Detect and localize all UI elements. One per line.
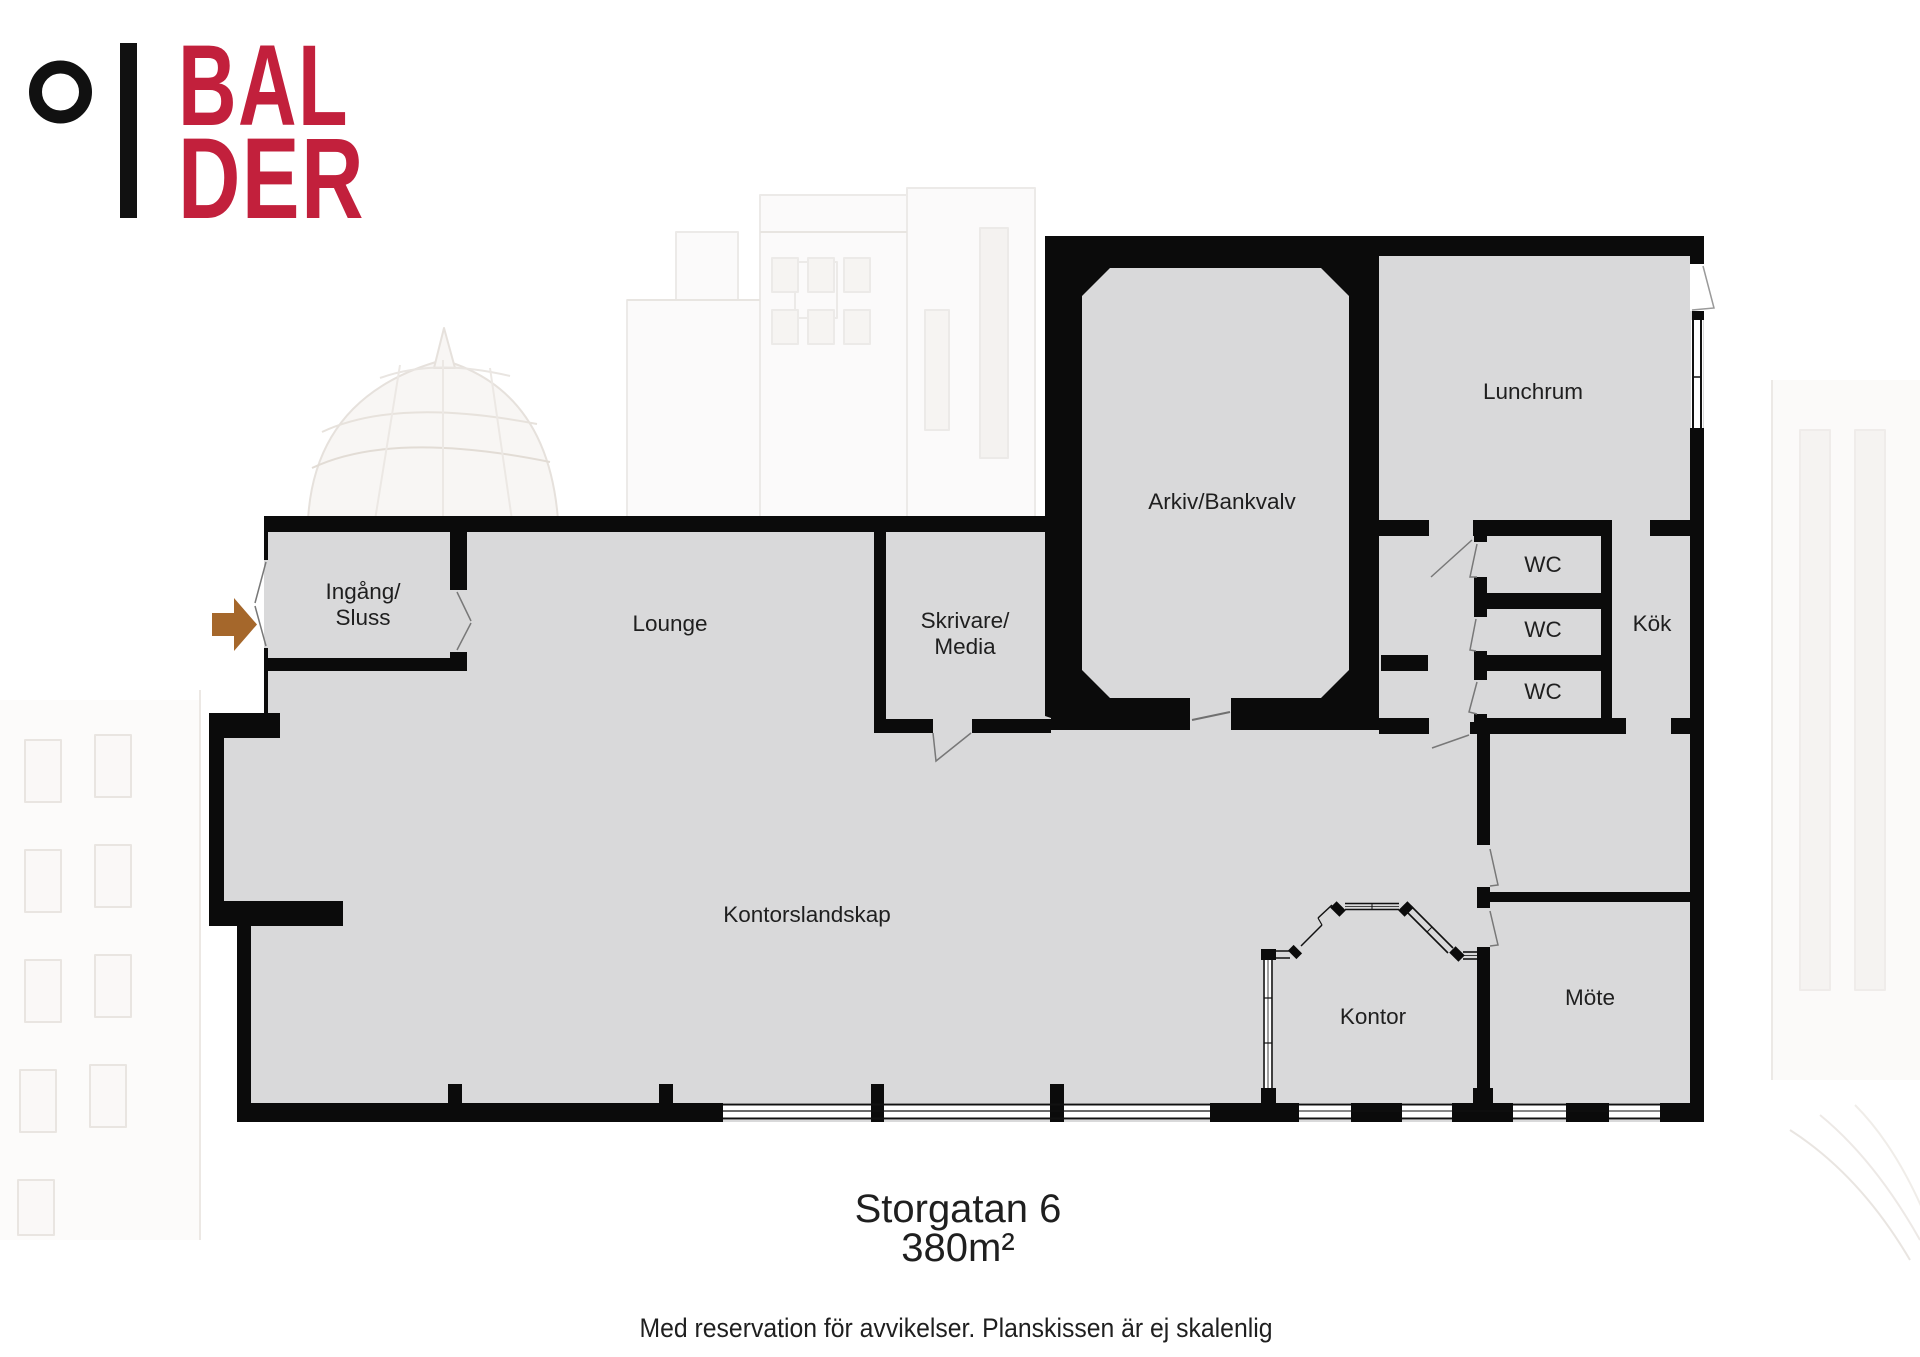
svg-text:Sluss: Sluss: [335, 605, 390, 630]
svg-text:Skrivare/: Skrivare/: [921, 608, 1011, 633]
svg-text:Storgatan 6: Storgatan 6: [855, 1187, 1062, 1231]
svg-text:Lunchrum: Lunchrum: [1483, 379, 1583, 404]
svg-text:Media: Media: [934, 634, 996, 659]
svg-text:Lounge: Lounge: [632, 611, 707, 636]
svg-text:Med reservation för avvikelser: Med reservation för avvikelser. Planskis…: [640, 1313, 1273, 1343]
svg-text:Ingång/: Ingång/: [325, 579, 401, 604]
svg-text:WC: WC: [1524, 679, 1562, 704]
svg-text:Möte: Möte: [1565, 985, 1615, 1010]
svg-text:Kök: Kök: [1633, 611, 1673, 636]
svg-text:WC: WC: [1524, 552, 1562, 577]
svg-text:Arkiv/Bankvalv: Arkiv/Bankvalv: [1148, 489, 1296, 514]
svg-text:Kontor: Kontor: [1340, 1004, 1407, 1029]
svg-text:Kontorslandskap: Kontorslandskap: [723, 902, 891, 927]
svg-text:WC: WC: [1524, 617, 1562, 642]
svg-text:DER: DER: [178, 115, 365, 243]
svg-text:380m²: 380m²: [901, 1226, 1014, 1270]
